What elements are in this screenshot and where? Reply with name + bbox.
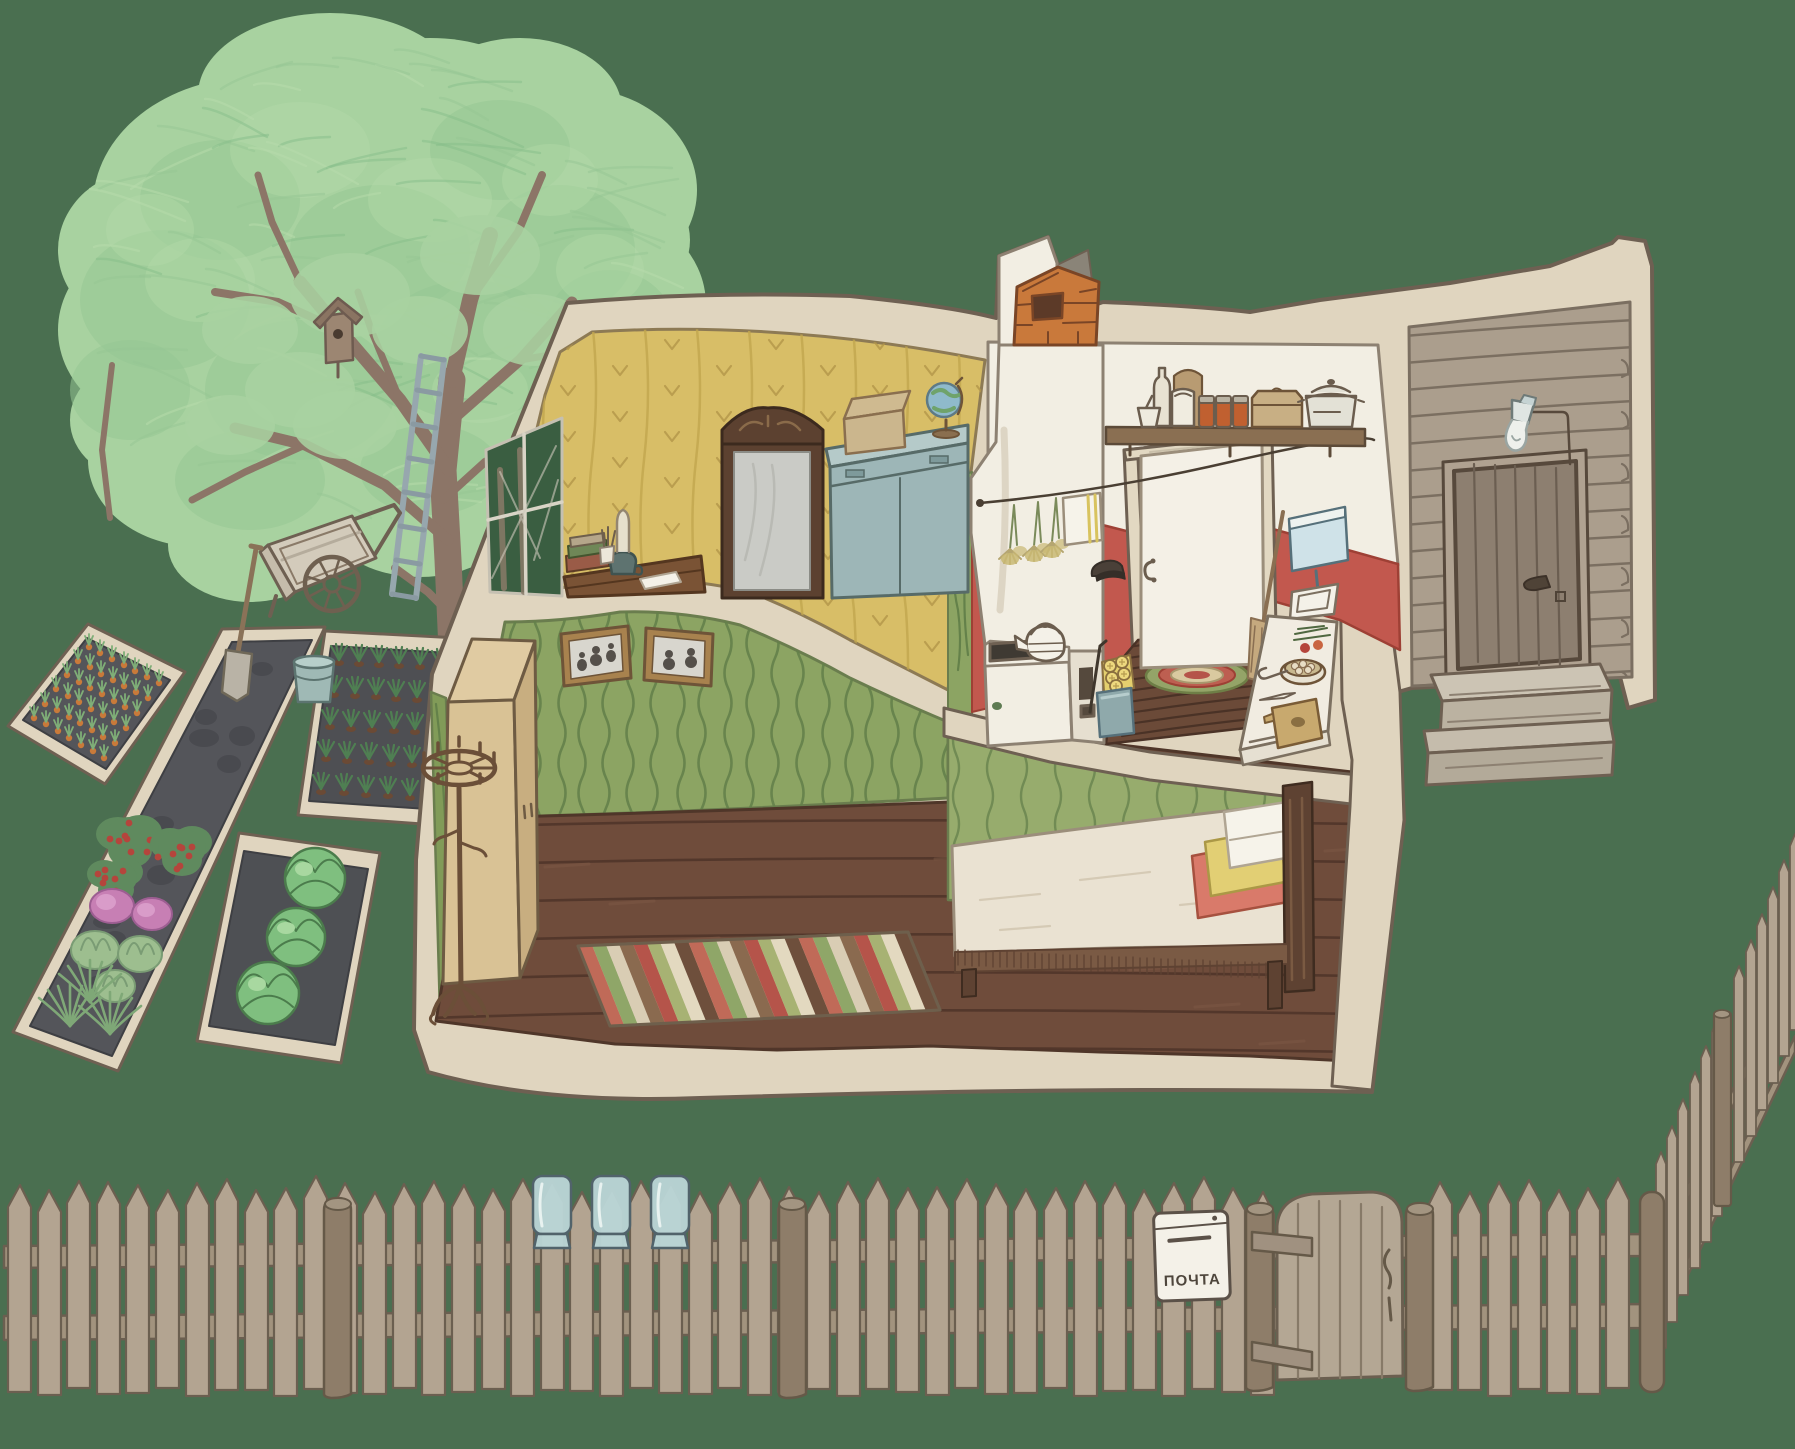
svg-text:ПОЧТА: ПОЧТА (1164, 1271, 1222, 1290)
